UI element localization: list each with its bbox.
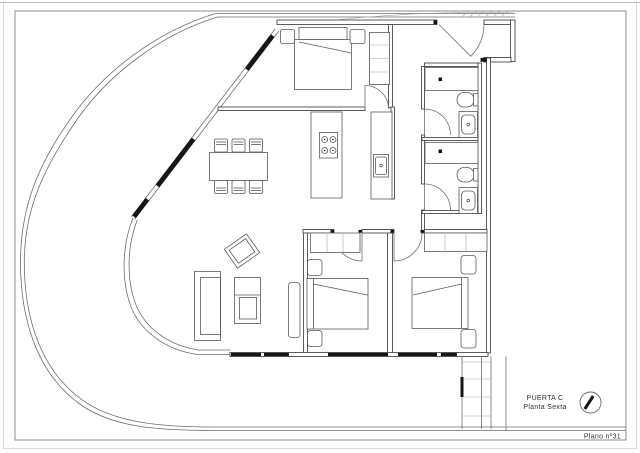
- wall-between-bedrooms: [388, 233, 393, 353]
- dining-chair: [250, 139, 263, 152]
- wall-corridor-c: [425, 230, 488, 234]
- wall-bath-divider: [422, 138, 478, 141]
- dining-chair: [232, 139, 245, 152]
- jamb-cap: [391, 230, 395, 233]
- closet: [311, 233, 361, 253]
- burner-knob: [324, 150, 325, 151]
- double-bed: [307, 279, 368, 330]
- dining-chair: [215, 139, 228, 152]
- burner-knob: [332, 139, 333, 140]
- nightstand: [350, 30, 365, 44]
- wall-bath-top: [425, 63, 479, 67]
- plan-number-label: Plano nº31: [584, 434, 621, 441]
- wall-bath-left-1: [422, 67, 425, 110]
- window-sill: [231, 353, 261, 356]
- shower-drain-icon: [439, 150, 443, 154]
- toilet-tank: [474, 94, 479, 107]
- dining-area: [210, 139, 268, 194]
- jamb-cap: [359, 230, 363, 233]
- window-sill: [264, 353, 289, 356]
- sofa: [195, 272, 221, 341]
- shower-drain-icon: [439, 78, 443, 82]
- wall-building-right: [487, 58, 491, 353]
- wall-corridor-b: [362, 230, 394, 234]
- wall-corridor-a: [303, 230, 334, 234]
- jamb-cap: [421, 230, 425, 233]
- wall-bath-left-2: [422, 135, 425, 184]
- nightstand: [461, 330, 476, 349]
- nightstand: [281, 30, 295, 44]
- window-sill: [328, 353, 388, 356]
- dining-chair: [232, 181, 245, 194]
- wall-master-south: [218, 107, 365, 111]
- burner-knob: [332, 150, 333, 151]
- plan-door-label: PUERTA C: [527, 395, 564, 402]
- double-bed: [412, 278, 468, 329]
- window-sill: [441, 353, 457, 356]
- nightstand: [308, 331, 323, 347]
- floor-plan-page: PUERTA C Planta Sexta Plano nº31: [0, 0, 640, 453]
- dining-chair: [250, 181, 263, 194]
- wall-right-upper: [511, 20, 516, 62]
- toilet-tank: [474, 169, 479, 182]
- closet: [425, 233, 488, 252]
- dining-chair: [215, 181, 228, 194]
- window-sill: [398, 353, 437, 356]
- floor-plan-drawing: PUERTA C Planta Sexta Plano nº31: [0, 0, 640, 453]
- wall-bath-right: [478, 63, 482, 214]
- jamb-cap: [481, 58, 488, 62]
- plan-floor-label: Planta Sexta: [523, 404, 566, 411]
- nightstand: [308, 260, 323, 276]
- dining-table: [210, 153, 268, 181]
- shaft-marker: [461, 377, 464, 397]
- jamb-cap: [331, 230, 335, 233]
- shower-tray: [425, 68, 478, 91]
- sideboard: [289, 283, 301, 338]
- toilet: [457, 93, 474, 108]
- burner-knob: [324, 139, 325, 140]
- nightstand: [461, 256, 476, 275]
- bed-headboard: [299, 28, 347, 40]
- shower-tray: [425, 143, 478, 164]
- jamb-cap: [434, 20, 438, 24]
- wall-top-left: [277, 20, 437, 25]
- toilet: [457, 168, 474, 183]
